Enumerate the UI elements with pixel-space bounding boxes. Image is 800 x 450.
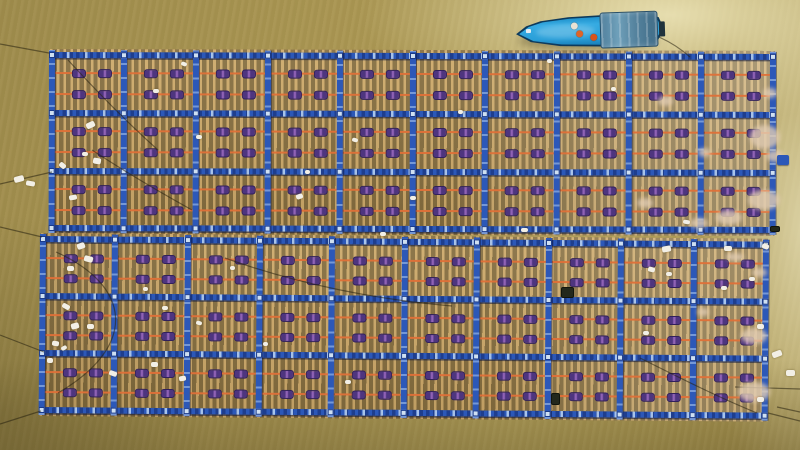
frame-joint-node	[617, 298, 623, 304]
boat-canopy	[599, 11, 658, 49]
frame-joint-node	[39, 407, 45, 413]
cage-float	[386, 91, 400, 100]
cage-float	[602, 149, 616, 158]
cage-float	[72, 127, 86, 136]
frame-joint-node	[49, 110, 55, 116]
frame-joint-node	[39, 350, 45, 356]
cage-float	[208, 255, 222, 264]
frame-joint-node	[121, 52, 127, 58]
styrofoam-debris	[643, 331, 649, 335]
cage-float	[136, 312, 150, 321]
boat-bow-roller	[526, 29, 531, 33]
cage-float	[675, 92, 689, 101]
cage-float	[450, 371, 464, 380]
cage-float	[675, 71, 689, 80]
cage-float	[216, 127, 230, 136]
cage-float	[242, 91, 256, 100]
cage-float	[98, 185, 112, 194]
frame-post	[626, 52, 632, 235]
frame-joint-node	[337, 53, 343, 59]
frame-joint-node	[193, 110, 199, 116]
frame-joint-node	[770, 54, 776, 60]
shell-debris-patch	[698, 148, 711, 157]
cage-float	[596, 258, 610, 267]
cage-float	[504, 149, 518, 158]
cage-float	[432, 128, 446, 137]
frame-joint-node	[554, 169, 560, 175]
styrofoam-debris	[196, 135, 202, 139]
work-boat	[515, 9, 662, 52]
styrofoam-debris	[749, 277, 755, 281]
cage-float	[668, 259, 682, 268]
styrofoam-debris	[757, 397, 764, 402]
cage-float	[740, 260, 754, 269]
anchor-rope	[768, 413, 800, 421]
cage-float	[432, 70, 446, 79]
frame-joint-node	[193, 168, 199, 174]
frame-joint-node	[121, 110, 127, 116]
shell-debris-patch	[750, 125, 780, 149]
frame-joint-node	[401, 353, 407, 359]
frame-joint-node	[762, 413, 768, 419]
cage-float	[504, 186, 518, 195]
anchor-rope	[0, 44, 49, 53]
cage-float	[386, 128, 400, 137]
cage-float	[280, 370, 294, 379]
frame-joint-node	[256, 352, 262, 358]
raft-upper	[49, 52, 776, 233]
cage-float	[649, 150, 663, 159]
frame-joint-node	[698, 54, 704, 60]
cage-float	[170, 69, 184, 78]
cage-float	[144, 148, 158, 157]
cage-float	[89, 388, 103, 397]
cage-float	[288, 207, 302, 216]
frame-joint-node	[770, 112, 776, 118]
styrofoam-debris	[521, 228, 528, 232]
cage-float	[497, 392, 511, 401]
frame-joint-node	[482, 53, 488, 59]
cage-float	[233, 390, 247, 399]
cage-float	[596, 278, 610, 287]
cage-float	[234, 256, 248, 265]
shell-debris-patch	[697, 308, 709, 316]
frame-joint-node	[762, 356, 768, 362]
frame-joint-node	[184, 408, 190, 414]
cage-float	[458, 186, 472, 195]
cage-float	[208, 312, 222, 321]
styrofoam-debris	[82, 152, 88, 156]
cage-float	[72, 185, 86, 194]
styrofoam-debris	[93, 157, 102, 164]
cage-float	[602, 128, 616, 137]
cage-float	[576, 207, 590, 216]
cage-float	[63, 368, 77, 377]
cage-float	[458, 207, 472, 216]
cage-float	[524, 258, 538, 267]
cage-float	[378, 334, 392, 343]
cage-float	[523, 335, 537, 344]
frame-joint-node	[626, 170, 632, 176]
cage-float	[523, 372, 537, 381]
frame-joint-node	[482, 111, 488, 117]
frame-joint-node	[121, 225, 127, 231]
frame-joint-node	[184, 351, 190, 357]
cage-float	[135, 332, 149, 341]
frame-joint-node	[40, 236, 46, 242]
cage-float	[530, 186, 544, 195]
cage-float	[144, 206, 158, 215]
cage-float	[714, 373, 728, 382]
cage-float	[288, 128, 302, 137]
anchor-rope	[0, 335, 44, 352]
cage-float	[63, 311, 77, 320]
cage-float	[714, 316, 728, 325]
cage-float	[641, 373, 655, 382]
frame-post	[265, 51, 271, 234]
cage-float	[425, 277, 439, 286]
frame-joint-node	[265, 111, 271, 117]
shell-debris-patch	[738, 382, 770, 402]
cage-float	[314, 128, 328, 137]
cage-float	[379, 277, 393, 286]
cage-float	[570, 258, 584, 267]
cage-float	[721, 129, 735, 138]
cage-float	[314, 186, 328, 195]
cage-float	[234, 276, 248, 285]
styrofoam-debris	[786, 370, 795, 376]
cage-float	[675, 150, 689, 159]
cage-float	[386, 149, 400, 158]
cage-float	[242, 149, 256, 158]
cage-float	[747, 71, 761, 80]
frame-joint-node	[618, 241, 624, 247]
styrofoam-debris	[547, 59, 552, 63]
cage-float	[576, 186, 590, 195]
cage-float	[307, 276, 321, 285]
cage-float	[603, 70, 617, 79]
cage-float	[288, 149, 302, 158]
frame-joint-node	[546, 240, 552, 246]
cage-float	[306, 333, 320, 342]
frame-joint-node	[329, 238, 335, 244]
cage-float	[432, 149, 446, 158]
frame-joint-node	[337, 111, 343, 117]
cage-float	[161, 369, 175, 378]
frame-joint-node	[690, 298, 696, 304]
anchor-rope	[0, 227, 42, 237]
dark-bucket	[561, 287, 574, 298]
cage-float	[314, 70, 328, 79]
cage-float	[674, 208, 688, 217]
styrofoam-debris	[87, 324, 94, 329]
frame-joint-node	[401, 296, 407, 302]
cage-float	[602, 186, 616, 195]
shell-debris-patch	[763, 88, 777, 98]
cage-float	[450, 391, 464, 400]
cage-float	[504, 128, 518, 137]
cage-float	[641, 393, 655, 402]
frame-joint-node	[265, 169, 271, 175]
cage-float	[458, 149, 472, 158]
frame-joint-node	[111, 351, 117, 357]
cage-float	[595, 392, 609, 401]
cage-float	[136, 255, 150, 264]
cage-float	[98, 69, 112, 78]
cage-float	[144, 69, 158, 78]
cage-float	[642, 316, 656, 325]
cage-float	[648, 187, 662, 196]
cage-float	[64, 254, 78, 263]
cage-float	[668, 336, 682, 345]
cage-float	[577, 70, 591, 79]
cage-float	[216, 185, 230, 194]
cage-float	[170, 90, 184, 99]
cage-float	[162, 312, 176, 321]
cage-float	[505, 70, 519, 79]
frame-joint-node	[257, 238, 263, 244]
frame-joint-node	[690, 355, 696, 361]
styrofoam-debris	[757, 324, 764, 329]
frame-joint-node	[49, 52, 55, 58]
cage-float	[64, 274, 78, 283]
cage-float	[360, 149, 374, 158]
cage-float	[713, 393, 727, 402]
cage-float	[135, 369, 149, 378]
cage-float	[451, 314, 465, 323]
cage-float	[280, 333, 294, 342]
frame-post	[337, 51, 343, 234]
frame-post	[410, 51, 416, 234]
frame-joint-node	[265, 226, 271, 232]
cage-float	[714, 336, 728, 345]
cage-float	[98, 206, 112, 215]
cage-float	[288, 70, 302, 79]
cage-float	[379, 314, 393, 323]
cage-float	[523, 392, 537, 401]
cage-float	[280, 313, 294, 322]
cage-float	[98, 90, 112, 99]
cage-float	[523, 278, 537, 287]
cage-float	[360, 70, 374, 79]
cage-float	[378, 391, 392, 400]
cage-float	[721, 71, 735, 80]
cage-float	[595, 315, 609, 324]
cage-float	[432, 186, 446, 195]
frame-joint-node	[691, 241, 697, 247]
frame-joint-node	[473, 410, 479, 416]
cage-float	[530, 149, 544, 158]
cage-float	[569, 372, 583, 381]
cage-float	[208, 275, 222, 284]
cage-float	[740, 317, 754, 326]
styrofoam-debris	[151, 362, 158, 367]
cage-float	[379, 257, 393, 266]
cage-float	[314, 91, 328, 100]
cage-float	[144, 185, 158, 194]
cage-float	[595, 372, 609, 381]
frame-joint-node	[626, 227, 632, 233]
cage-float	[281, 256, 295, 265]
cage-float	[352, 333, 366, 342]
cage-float	[576, 128, 590, 137]
frame-joint-node	[770, 170, 776, 176]
cage-float	[208, 332, 222, 341]
frame-joint-node	[193, 225, 199, 231]
frame-joint-node	[473, 296, 479, 302]
frame-joint-node	[410, 226, 416, 232]
frame-joint-node	[337, 226, 343, 232]
cage-float	[306, 390, 320, 399]
styrofoam-debris	[47, 358, 53, 363]
frame-joint-node	[40, 293, 46, 299]
cage-float	[386, 186, 400, 195]
cage-float	[451, 277, 465, 286]
frame-post	[698, 52, 704, 235]
cage-float	[497, 372, 511, 381]
frame-joint-node	[554, 111, 560, 117]
cage-float	[314, 207, 328, 216]
frame-joint-node	[185, 237, 191, 243]
cage-float	[569, 392, 583, 401]
cage-float	[668, 316, 682, 325]
dark-bucket	[551, 393, 560, 405]
cage-float	[424, 391, 438, 400]
cage-float	[648, 208, 662, 217]
cage-float	[649, 71, 663, 80]
shell-debris-patch	[716, 210, 742, 225]
cage-float	[675, 129, 689, 138]
aerial-photo-scene	[0, 0, 800, 450]
cage-float	[307, 256, 321, 265]
cage-float	[72, 206, 86, 215]
styrofoam-debris	[380, 232, 386, 236]
frame-joint-node	[626, 54, 632, 60]
frame-joint-node	[256, 295, 262, 301]
frame-joint-node	[328, 295, 334, 301]
frame-joint-node	[402, 239, 408, 245]
cage-float	[714, 259, 728, 268]
cage-float	[530, 207, 544, 216]
cage-float	[360, 128, 374, 137]
cage-float	[602, 207, 616, 216]
shell-debris-patch	[658, 96, 673, 106]
frame-joint-node	[401, 410, 407, 416]
cage-float	[353, 276, 367, 285]
cage-float	[288, 91, 302, 100]
cage-float	[242, 128, 256, 137]
styrofoam-debris	[611, 87, 616, 91]
styrofoam-debris	[724, 246, 732, 251]
anchor-rope	[777, 407, 800, 412]
cage-float	[497, 278, 511, 287]
shell-debris-patch	[637, 198, 653, 208]
cage-float	[425, 314, 439, 323]
frame-joint-node	[762, 299, 768, 305]
frame-joint-node	[698, 170, 704, 176]
frame-joint-node	[554, 226, 560, 232]
cage-float	[314, 149, 328, 158]
frame-joint-node	[328, 352, 334, 358]
styrofoam-debris	[458, 110, 463, 114]
styrofoam-debris	[263, 342, 268, 346]
frame-joint-node	[265, 53, 271, 59]
cage-float	[498, 258, 512, 267]
cage-float	[72, 90, 86, 99]
cage-float	[649, 129, 663, 138]
frame-post	[482, 51, 488, 234]
cage-float	[451, 334, 465, 343]
cage-float	[162, 255, 176, 264]
boat-engine	[659, 21, 666, 36]
frame-joint-node	[328, 409, 334, 415]
anchor-rope	[0, 411, 41, 424]
cage-float	[63, 388, 77, 397]
frame-joint-node	[49, 225, 55, 231]
shell-debris-patch	[748, 190, 780, 210]
cage-float	[170, 206, 184, 215]
cage-float	[570, 278, 584, 287]
frame-joint-node	[410, 53, 416, 59]
cage-float	[90, 274, 104, 283]
cage-float	[569, 335, 583, 344]
cage-float	[747, 92, 761, 101]
styrofoam-debris	[666, 272, 672, 276]
cage-float	[353, 313, 367, 322]
cage-float	[72, 69, 86, 78]
cage-float	[576, 149, 590, 158]
frame-post	[193, 50, 199, 233]
cage-float	[386, 70, 400, 79]
cage-float	[216, 69, 230, 78]
cage-float	[458, 70, 472, 79]
cage-float	[216, 90, 230, 99]
frame-joint-node	[473, 353, 479, 359]
cage-float	[216, 148, 230, 157]
cage-float	[352, 390, 366, 399]
frame-joint-node	[545, 411, 551, 417]
frame-joint-node	[554, 53, 560, 59]
styrofoam-debris	[410, 196, 416, 200]
styrofoam-debris	[230, 266, 235, 270]
frame-joint-node	[112, 294, 118, 300]
cage-float	[721, 150, 735, 159]
cage-float	[161, 389, 175, 398]
cage-float	[721, 92, 735, 101]
cage-float	[667, 373, 681, 382]
cage-float	[233, 370, 247, 379]
frame-joint-node	[185, 294, 191, 300]
cage-float	[432, 207, 446, 216]
cage-float	[360, 207, 374, 216]
frame-joint-node	[256, 409, 262, 415]
frame-joint-node	[617, 355, 623, 361]
cage-float	[530, 128, 544, 137]
cage-float	[458, 128, 472, 137]
cage-float	[352, 370, 366, 379]
styrofoam-debris	[721, 286, 727, 290]
cage-float	[98, 127, 112, 136]
frame-joint-node	[121, 168, 127, 174]
cage-float	[207, 369, 221, 378]
cage-float	[523, 315, 537, 324]
frame-joint-node	[112, 237, 118, 243]
cage-float	[242, 70, 256, 79]
cage-float	[451, 257, 465, 266]
shell-debris-patch	[726, 253, 744, 261]
cage-float	[595, 335, 609, 344]
cage-float	[721, 187, 735, 196]
